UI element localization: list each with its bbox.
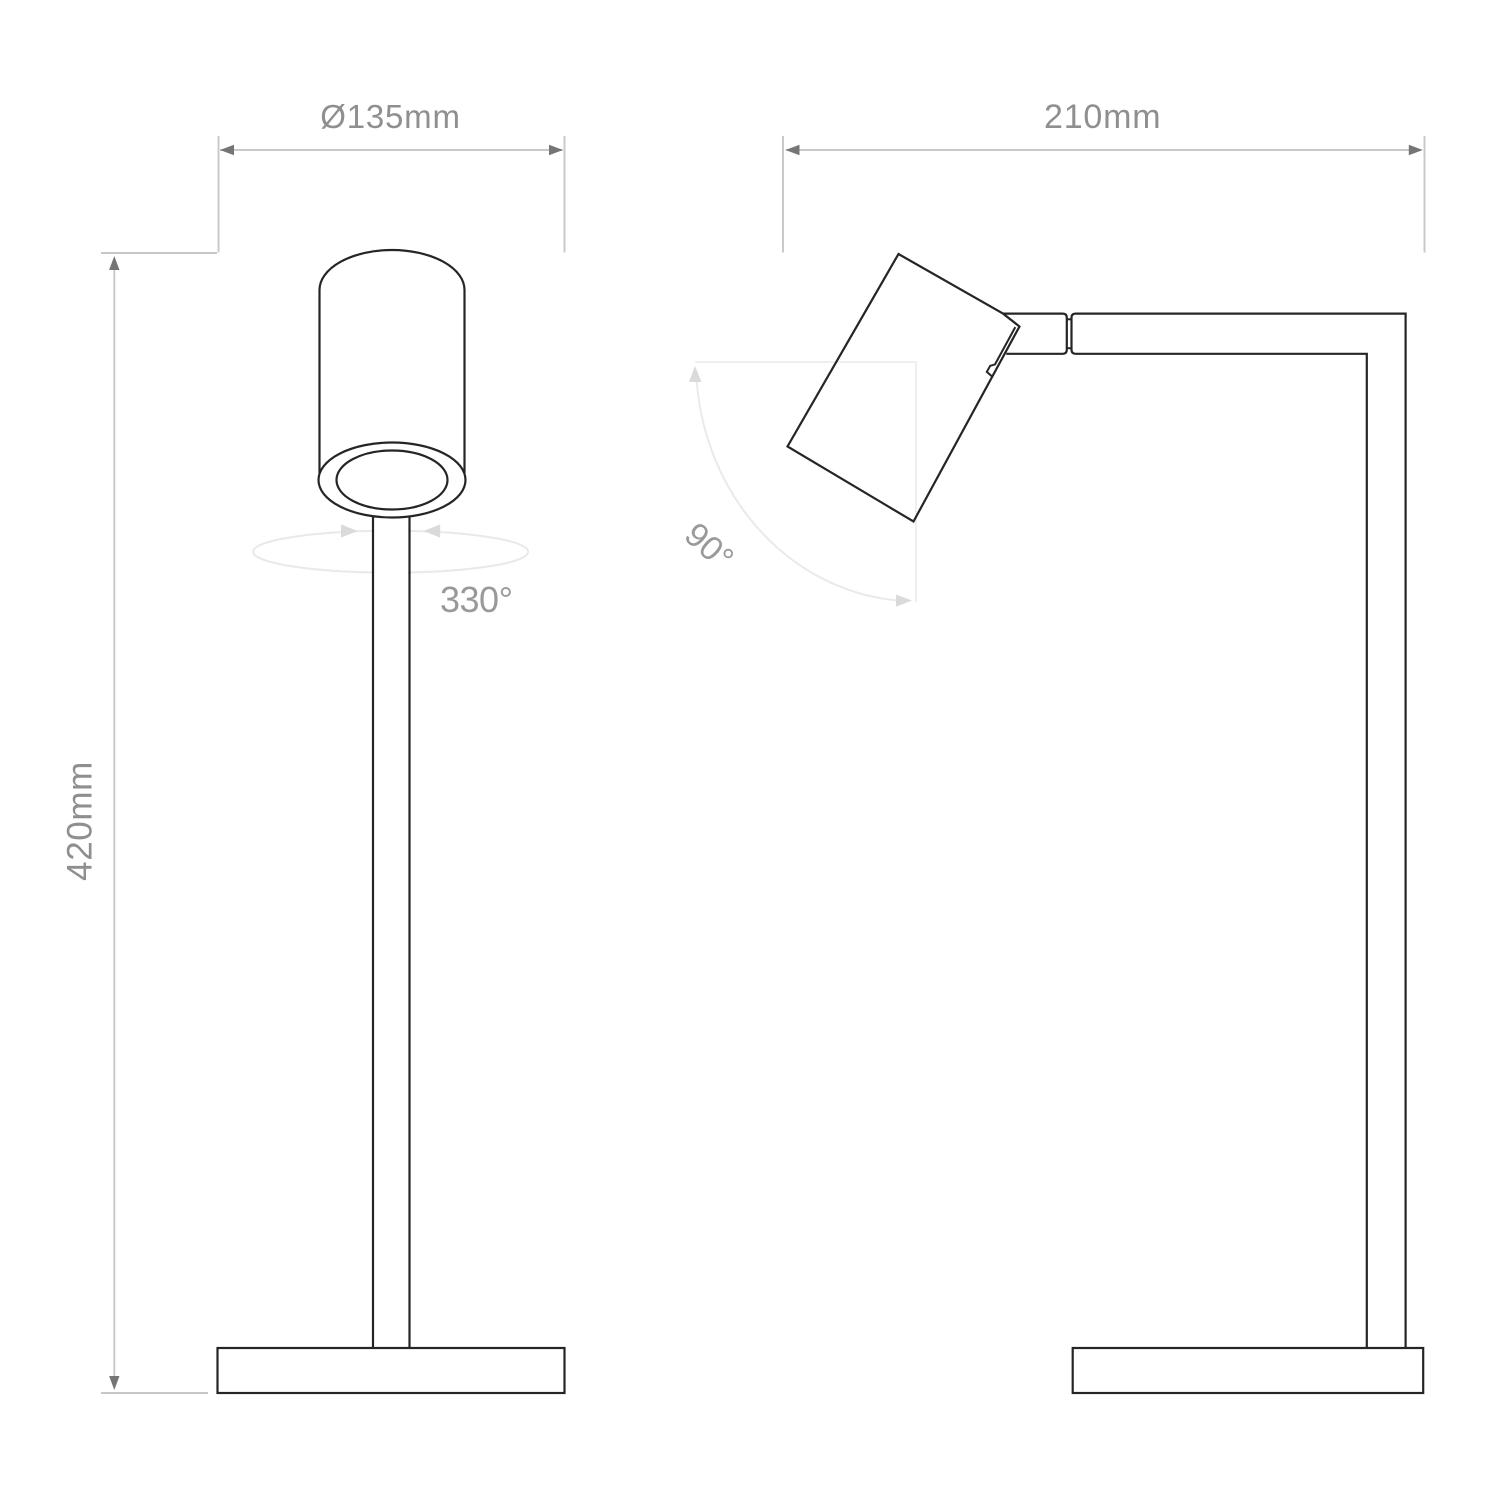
svg-text:Ø135mm: Ø135mm xyxy=(320,98,461,135)
svg-text:210mm: 210mm xyxy=(1044,98,1161,136)
svg-text:330°: 330° xyxy=(440,579,512,620)
svg-text:420mm: 420mm xyxy=(61,761,100,881)
